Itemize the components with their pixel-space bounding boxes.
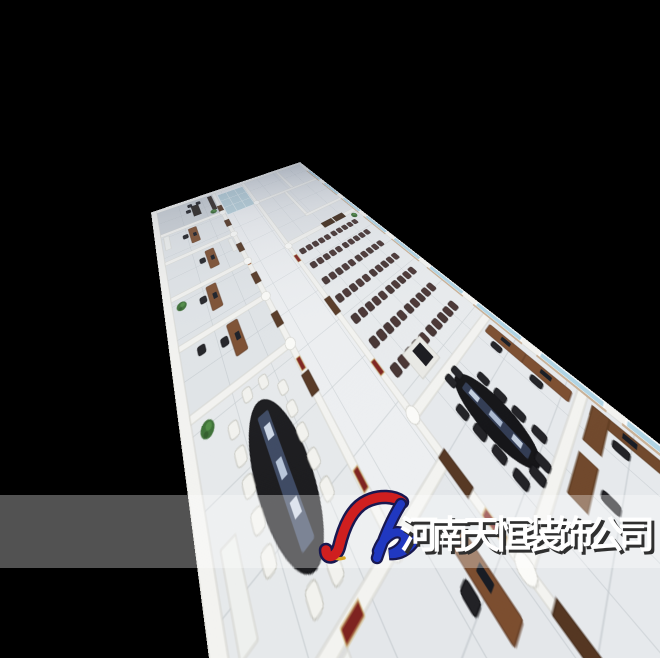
- render-canvas: 河南天恒装饰公司 河南天恒装饰公司: [0, 0, 660, 658]
- company-name-text: 河南天恒装饰公司: [400, 515, 652, 557]
